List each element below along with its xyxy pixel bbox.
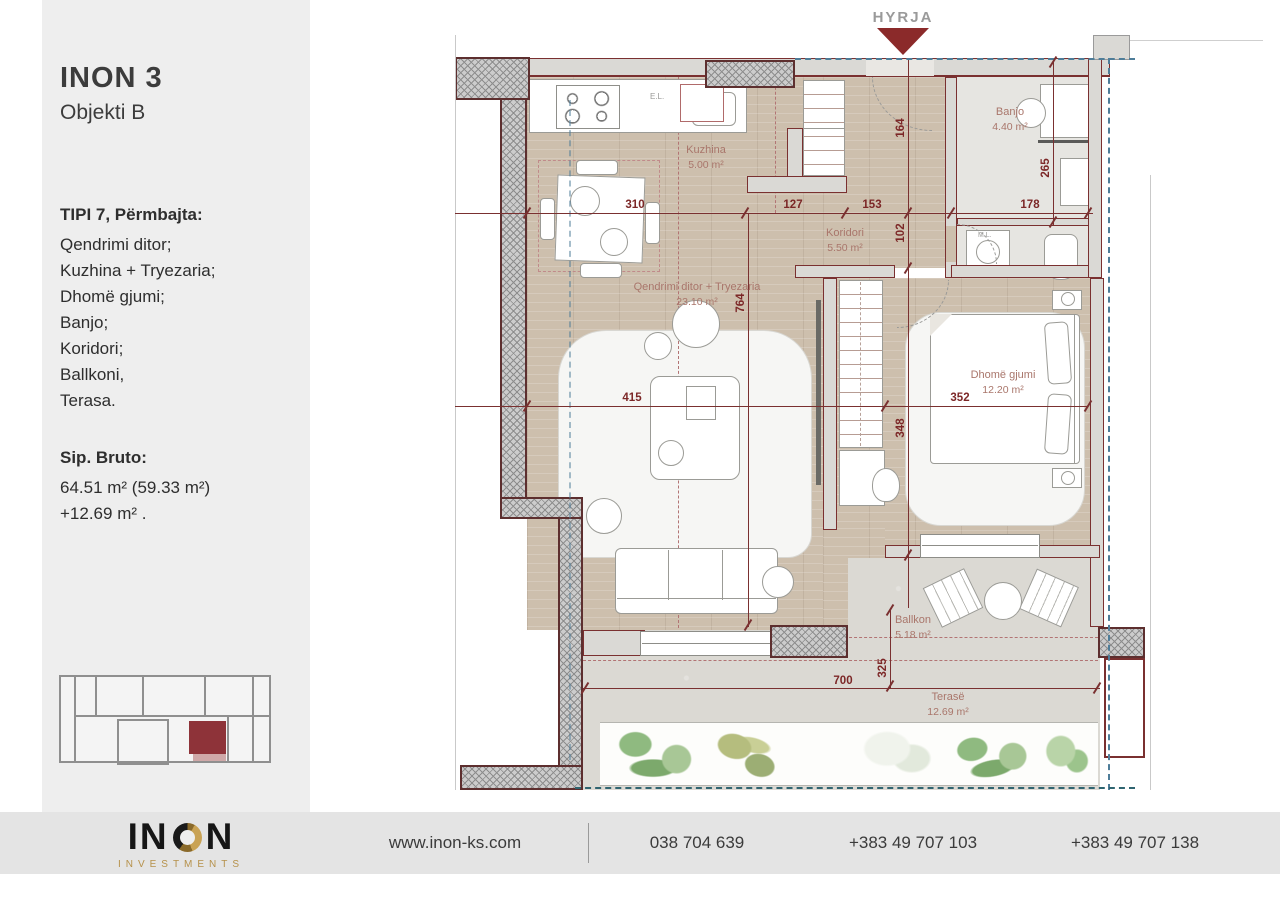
minimap-highlighted-terrace bbox=[193, 754, 226, 761]
room-label-dhome-gjumi: Dhomë gjumi 12.20 m² bbox=[971, 368, 1036, 398]
wall-bottom-foot bbox=[460, 765, 583, 790]
room-list-item: Terasa. bbox=[60, 388, 215, 414]
room-list-item: Ballkoni, bbox=[60, 362, 215, 388]
sofa bbox=[615, 548, 778, 614]
dimension-line bbox=[748, 213, 749, 627]
dimension-label: 352 bbox=[950, 392, 969, 404]
lamp bbox=[1061, 292, 1075, 306]
plant bbox=[848, 720, 946, 784]
dimension-line bbox=[583, 688, 1100, 689]
minimap-wall bbox=[227, 715, 229, 761]
shower-tray bbox=[1040, 84, 1090, 138]
wardrobe bbox=[839, 280, 883, 448]
extension-line bbox=[455, 35, 456, 790]
minimap-wall bbox=[95, 677, 97, 715]
room-list-heading: TIPI 7, Përmbajta: bbox=[60, 205, 215, 225]
minimap-highlighted-unit bbox=[189, 721, 226, 754]
side-table bbox=[762, 566, 794, 598]
dimension-label: 700 bbox=[833, 675, 852, 687]
entry-opening bbox=[866, 59, 934, 76]
dimension-line bbox=[890, 608, 891, 688]
room-name: Qendrimi ditor + Tryezaria bbox=[634, 280, 761, 295]
room-label-ballkon: Ballkon 5.18 m² bbox=[895, 613, 931, 643]
plant bbox=[606, 722, 704, 786]
logo-subtitle: INVESTMENTS bbox=[86, 859, 276, 870]
dimension-label: 102 bbox=[895, 223, 907, 242]
dimension-line bbox=[1053, 62, 1054, 225]
room-name: Terasë bbox=[927, 690, 968, 705]
room-area: 23.10 m² bbox=[634, 295, 761, 310]
wall-living-south bbox=[583, 630, 645, 656]
minimap-room bbox=[117, 719, 169, 765]
room-area: 12.69 m² bbox=[927, 705, 968, 720]
room-area: 5.50 m² bbox=[826, 241, 864, 256]
footer-phone-2: +383 49 707 103 bbox=[849, 833, 977, 853]
room-list-item: Kuzhina + Tryezaria; bbox=[60, 258, 215, 284]
boundary-line bbox=[1150, 175, 1151, 790]
construction-line bbox=[678, 77, 679, 628]
dimension-label: 127 bbox=[783, 199, 802, 211]
dimension-label: 178 bbox=[1020, 199, 1039, 211]
wall-kitchen-peninsula bbox=[747, 176, 847, 193]
shower-glass bbox=[1038, 140, 1090, 143]
wall-left-upper bbox=[500, 98, 527, 500]
room-list: TIPI 7, Përmbajta: Qendrimi ditor; Kuzhi… bbox=[60, 205, 215, 414]
wall-bath-divider bbox=[957, 218, 1090, 226]
sofa-seat-line bbox=[722, 550, 723, 600]
room-list-item: Dhomë gjumi; bbox=[60, 284, 215, 310]
logo-text-left: IN bbox=[128, 818, 169, 856]
blanket-fold bbox=[930, 314, 952, 336]
wall-wardrobe-top bbox=[795, 265, 895, 278]
minimap-wall bbox=[74, 677, 76, 761]
room-label-koridori: Koridori 5.50 m² bbox=[826, 226, 864, 256]
plate bbox=[570, 186, 600, 216]
footer-divider bbox=[588, 823, 589, 863]
electrical-box bbox=[680, 84, 724, 122]
minimap-wall bbox=[204, 677, 206, 715]
coffee-table-decor bbox=[658, 440, 684, 466]
project-subtitle: Objekti B bbox=[60, 101, 163, 125]
sidebar-header: INON 3 Objekti B bbox=[60, 62, 163, 125]
wall-top-right-block bbox=[1093, 35, 1130, 60]
coffee-table-tray bbox=[686, 386, 716, 420]
room-area: 5.18 m² bbox=[895, 628, 931, 643]
wall-right-top bbox=[1088, 58, 1102, 278]
dining-chair bbox=[580, 263, 622, 278]
gross-area-heading: Sip. Bruto: bbox=[60, 448, 210, 468]
pier-balcony-right bbox=[1098, 627, 1145, 658]
flyer-page: E.L. bbox=[0, 0, 1280, 901]
minimap-wall bbox=[74, 715, 269, 717]
bath-door-gap bbox=[946, 226, 956, 262]
logo-wordmark: IN N bbox=[86, 818, 276, 856]
room-list-item: Koridori; bbox=[60, 336, 215, 362]
room-name: Ballkon bbox=[895, 613, 931, 628]
plant bbox=[1036, 725, 1098, 783]
dimension-label: 310 bbox=[625, 199, 644, 211]
minimap-wall bbox=[252, 677, 254, 761]
entry-arrow-icon bbox=[877, 28, 929, 55]
closet-shelf-line bbox=[803, 128, 845, 129]
wall-bath-bottom bbox=[951, 265, 1096, 278]
wardrobe-rail bbox=[860, 282, 861, 446]
project-title: INON 3 bbox=[60, 62, 163, 95]
dimension-label: 348 bbox=[895, 418, 907, 437]
dimension-label: 153 bbox=[862, 199, 881, 211]
bath-cabinet bbox=[1060, 158, 1090, 206]
tv-panel bbox=[816, 300, 821, 485]
room-list-item: Qendrimi ditor; bbox=[60, 232, 215, 258]
room-label-banjo: Banjo 4.40 m² bbox=[992, 105, 1028, 135]
facade-line-left bbox=[569, 100, 571, 760]
building-minimap bbox=[59, 675, 271, 763]
stove bbox=[556, 85, 620, 129]
dining-chair bbox=[576, 160, 618, 175]
room-area: 4.40 m² bbox=[992, 120, 1028, 135]
gross-area-value: 64.51 m² (59.33 m²) bbox=[60, 475, 210, 501]
lamp bbox=[1061, 471, 1075, 485]
facade-line-right bbox=[1108, 58, 1110, 790]
electrical-label: E.L. bbox=[650, 92, 664, 101]
pouf bbox=[586, 498, 622, 534]
plate bbox=[600, 228, 628, 256]
facade-line-top bbox=[795, 58, 1135, 60]
room-name: Banjo bbox=[992, 105, 1028, 120]
room-area: 12.20 m² bbox=[971, 383, 1036, 398]
desk-chair bbox=[872, 468, 900, 502]
footer-website: www.inon-ks.com bbox=[389, 833, 521, 853]
dimension-line bbox=[908, 60, 909, 608]
room-label-terase: Terasë 12.69 m² bbox=[927, 690, 968, 720]
footer-phone-1: 038 704 639 bbox=[650, 833, 745, 853]
terrace-area-value: +12.69 m² . bbox=[60, 501, 210, 527]
room-label-qendrimi: Qendrimi ditor + Tryezaria 23.10 m² bbox=[634, 280, 761, 310]
room-area: 5.00 m² bbox=[686, 158, 726, 173]
bedroom-window-line bbox=[922, 545, 1038, 546]
pier-top-middle bbox=[705, 60, 795, 88]
sofa-back-line bbox=[617, 598, 776, 599]
sofa-seat-line bbox=[668, 550, 669, 600]
pillow bbox=[1044, 321, 1072, 385]
facade-line-bottom bbox=[575, 787, 1135, 789]
balcony-edge-dashed bbox=[583, 660, 1098, 661]
wall-right-mid bbox=[1090, 278, 1104, 627]
pier-balcony-left bbox=[770, 625, 848, 658]
dimension-label: 415 bbox=[622, 392, 641, 404]
dimension-label: 164 bbox=[895, 118, 907, 137]
wall-top-band bbox=[527, 58, 1110, 77]
pier-top-left bbox=[455, 57, 530, 100]
minimap-wall bbox=[142, 677, 144, 715]
gross-area: Sip. Bruto: 64.51 m² (59.33 m²) +12.69 m… bbox=[60, 448, 210, 527]
terrace-side-room bbox=[1104, 658, 1145, 758]
room-label-kuzhina: Kuzhina 5.00 m² bbox=[686, 143, 726, 173]
dimension-label: 265 bbox=[1040, 158, 1052, 177]
pillow bbox=[1044, 393, 1072, 455]
extension-line bbox=[1130, 40, 1263, 41]
logo-ring-icon bbox=[173, 823, 202, 852]
wall-wardrobe-left bbox=[823, 278, 837, 530]
dimension-line bbox=[455, 213, 1093, 214]
bedroom-window bbox=[920, 534, 1040, 558]
balcony-table bbox=[984, 582, 1022, 620]
room-list-item: Banjo; bbox=[60, 310, 215, 336]
company-logo: IN N INVESTMENTS bbox=[86, 818, 276, 870]
room-name: Koridori bbox=[826, 226, 864, 241]
pouf bbox=[644, 332, 672, 360]
headboard-line bbox=[1074, 314, 1075, 464]
entry-label: HYRJA bbox=[873, 9, 934, 26]
room-name: Kuzhina bbox=[686, 143, 726, 158]
living-window-line bbox=[642, 643, 770, 644]
logo-text-right: N bbox=[206, 818, 235, 856]
dining-chair bbox=[645, 202, 660, 244]
footer-phone-3: +383 49 707 138 bbox=[1071, 833, 1199, 853]
dimension-label: 325 bbox=[877, 658, 889, 677]
room-name: Dhomë gjumi bbox=[971, 368, 1036, 383]
dimension-line bbox=[455, 406, 1088, 407]
dining-chair bbox=[540, 198, 555, 240]
